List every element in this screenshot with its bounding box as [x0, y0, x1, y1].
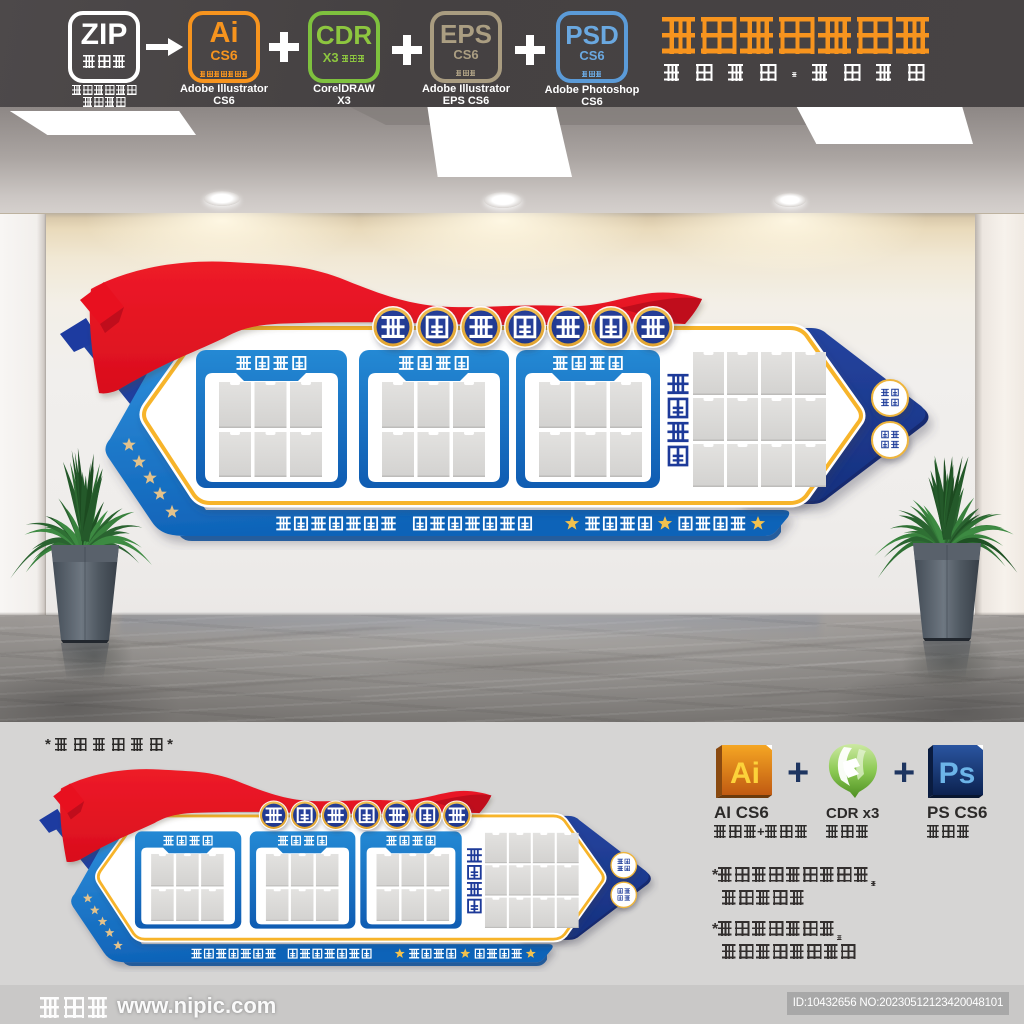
svg-text:Ai: Ai [730, 757, 760, 790]
svg-text:Ps: Ps [939, 757, 976, 790]
